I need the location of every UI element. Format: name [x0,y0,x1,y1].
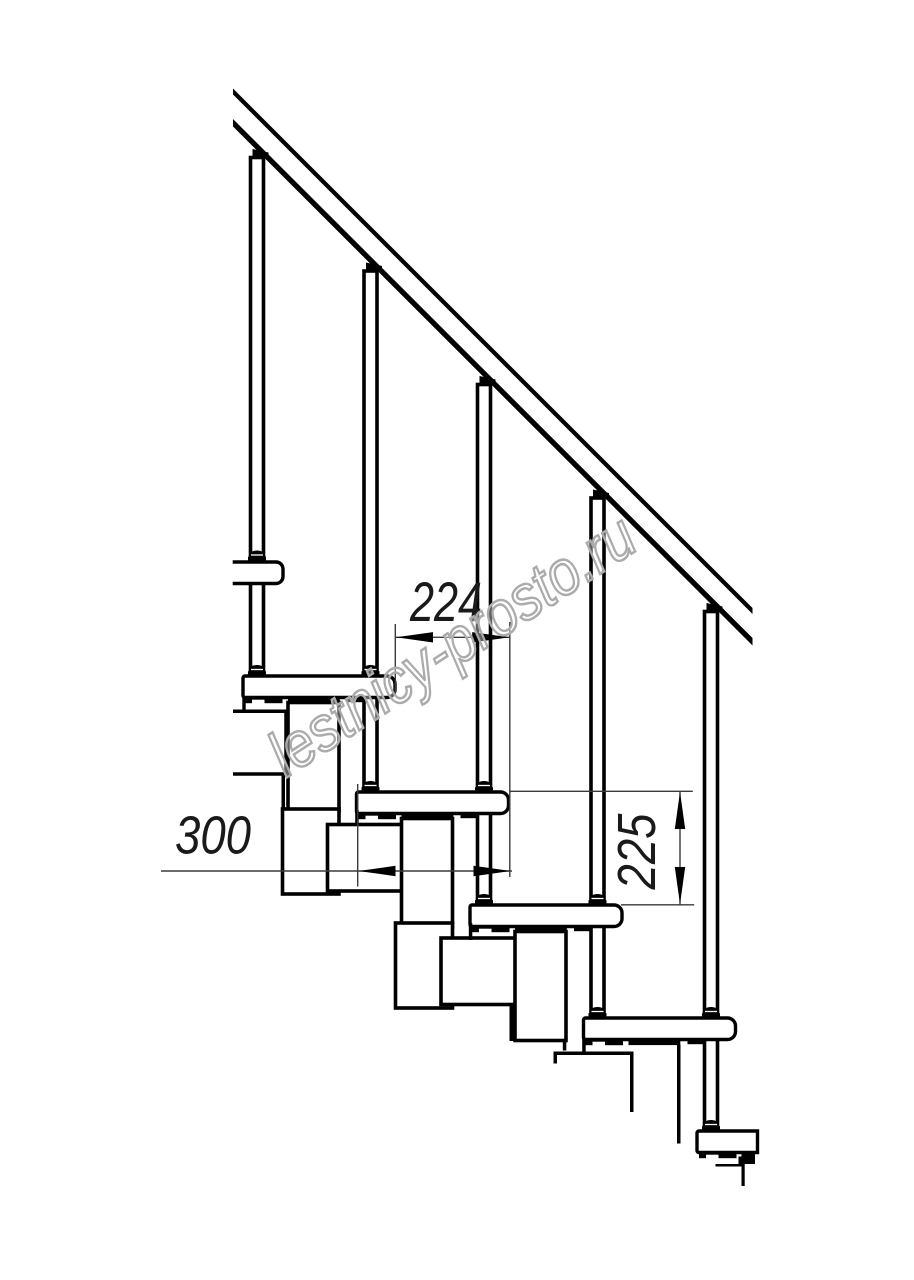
svg-text:225: 225 [607,813,667,891]
svg-text:300: 300 [175,806,251,866]
